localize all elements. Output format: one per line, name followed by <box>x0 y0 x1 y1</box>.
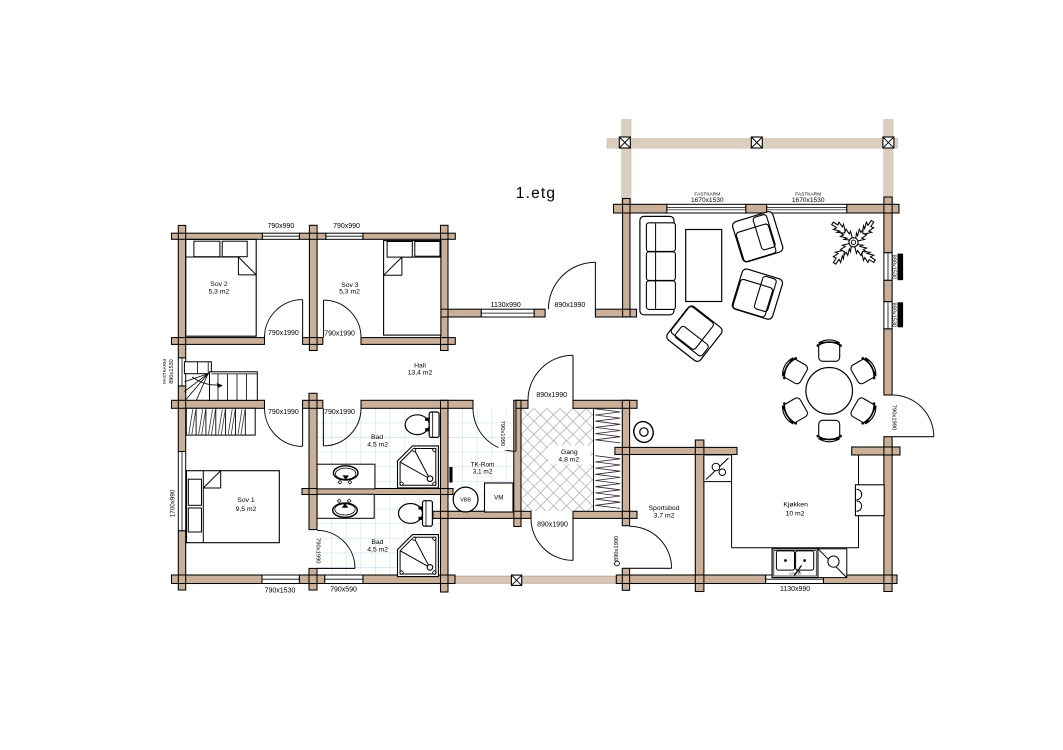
svg-text:1700x990: 1700x990 <box>169 489 176 517</box>
svg-text:KJOKKEN: KJOKKEN <box>789 572 801 576</box>
svg-text:890x1530: 890x1530 <box>891 303 897 328</box>
svg-text:5,3 m2: 5,3 m2 <box>209 288 230 295</box>
svg-text:790x1990: 790x1990 <box>268 409 299 416</box>
svg-text:Sportsbod: Sportsbod <box>649 505 680 512</box>
svg-text:790x1990: 790x1990 <box>324 409 355 416</box>
svg-text:890x1990: 890x1990 <box>555 302 586 309</box>
svg-text:790x1990: 790x1990 <box>268 330 299 337</box>
svg-text:4,8 m2: 4,8 m2 <box>558 457 579 464</box>
svg-text:13,4 m2: 13,4 m2 <box>408 370 433 377</box>
svg-text:TK-Rom: TK-Rom <box>471 461 495 468</box>
svg-text:3,1 m2: 3,1 m2 <box>473 469 493 476</box>
svg-text:1.etg: 1.etg <box>516 185 556 202</box>
svg-text:Sov 2: Sov 2 <box>210 281 228 288</box>
svg-text:790x1990: 790x1990 <box>890 405 896 430</box>
svg-text:790x590: 790x590 <box>330 587 357 594</box>
svg-text:890x1530: 890x1530 <box>891 255 897 280</box>
svg-text:1670x1530: 1670x1530 <box>792 197 825 204</box>
svg-text:790x990: 790x990 <box>333 223 360 230</box>
svg-text:1670x1530: 1670x1530 <box>691 197 724 204</box>
svg-text:Bad: Bad <box>371 434 383 441</box>
svg-text:890x1990: 890x1990 <box>614 536 620 561</box>
svg-text:790x1990: 790x1990 <box>324 331 355 338</box>
svg-text:790x1990: 790x1990 <box>499 421 505 446</box>
svg-text:890x1990: 890x1990 <box>536 392 567 399</box>
svg-text:Bad: Bad <box>371 539 383 546</box>
svg-text:1130x990: 1130x990 <box>780 586 810 593</box>
svg-text:FASTKARM: FASTKARM <box>162 359 167 384</box>
svg-text:890x1990: 890x1990 <box>537 522 568 529</box>
svg-text:Kjøkken: Kjøkken <box>783 501 808 508</box>
svg-text:9,5 m2: 9,5 m2 <box>236 506 257 513</box>
svg-text:1130x990: 1130x990 <box>491 302 521 309</box>
svg-text:Sov 1: Sov 1 <box>237 497 255 504</box>
svg-text:890x1530: 890x1530 <box>169 359 175 384</box>
svg-text:Gang: Gang <box>561 449 578 456</box>
svg-text:5,3 m2: 5,3 m2 <box>339 288 360 295</box>
svg-text:4,5 m2: 4,5 m2 <box>367 442 388 449</box>
svg-text:790x990: 790x990 <box>267 223 294 230</box>
svg-text:Hall: Hall <box>414 362 426 369</box>
svg-text:790x1990: 790x1990 <box>315 538 321 563</box>
svg-text:VBB: VBB <box>460 497 471 503</box>
svg-text:790x1530: 790x1530 <box>265 588 296 595</box>
svg-text:3,7 m2: 3,7 m2 <box>654 512 675 519</box>
svg-text:VM: VM <box>494 494 503 501</box>
svg-text:4,5 m2: 4,5 m2 <box>367 546 388 553</box>
svg-text:10 m2: 10 m2 <box>786 510 805 517</box>
